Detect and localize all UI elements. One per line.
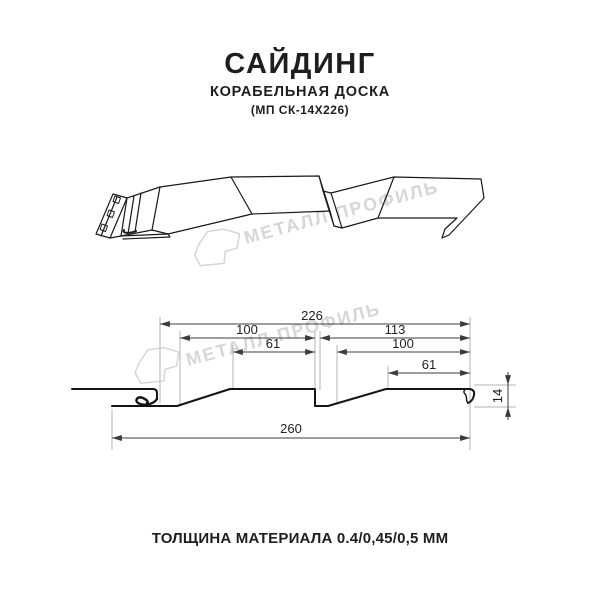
- dim-label-226: 226: [301, 308, 323, 323]
- brand-logo-icon: [135, 348, 179, 384]
- watermark-section-view: МЕТАЛЛ ПРОФИЛЬ: [135, 299, 383, 384]
- brand-watermark-text: МЕТАЛЛ ПРОФИЛЬ: [184, 299, 383, 370]
- lock-hook-curl: [136, 397, 157, 404]
- profile-section-outline: [72, 389, 474, 406]
- nail-strip-face: [96, 194, 127, 238]
- dim-label-14: 14: [490, 389, 505, 403]
- right-edge-break-squiggle: [464, 389, 468, 403]
- end-flange-fold: [442, 229, 449, 238]
- lock-flange-fold: [128, 196, 134, 234]
- end-flange-outer: [449, 198, 484, 235]
- dimension-lines: [112, 324, 508, 438]
- dim-label-100-right: 100: [392, 336, 414, 351]
- dim-label-61-left: 61: [266, 336, 280, 351]
- technical-drawing: МЕТАЛЛ ПРОФИЛЬ МЕТАЛЛ ПРОФИЛЬ: [0, 0, 600, 600]
- panel-section-line: [112, 389, 474, 406]
- dim-label-113: 113: [385, 322, 406, 337]
- lock-flange-fold: [135, 193, 141, 232]
- watermark-3d-view: МЕТАЛЛ ПРОФИЛЬ: [195, 177, 442, 266]
- panel-fold-line: [231, 177, 252, 214]
- hem-roll: [124, 230, 136, 233]
- brand-logo-icon: [195, 229, 240, 266]
- dim-label-61-right: 61: [422, 357, 436, 372]
- end-flange-inner: [445, 218, 457, 229]
- nail-hole: [113, 196, 121, 204]
- dim-label-100-left: 100: [236, 322, 258, 337]
- strip-fold: [110, 236, 121, 238]
- product-drawing-page: САЙДИНГ КОРАБЕЛЬНАЯ ДОСКА (МП СК-14Х226)…: [0, 0, 600, 600]
- brand-watermark-text: МЕТАЛЛ ПРОФИЛЬ: [242, 177, 441, 248]
- extension-lines: [112, 317, 516, 450]
- material-thickness-note: ТОЛЩИНА МАТЕРИАЛА 0.4/0,45/0,5 ММ: [0, 530, 600, 547]
- dim-label-260: 260: [280, 421, 302, 436]
